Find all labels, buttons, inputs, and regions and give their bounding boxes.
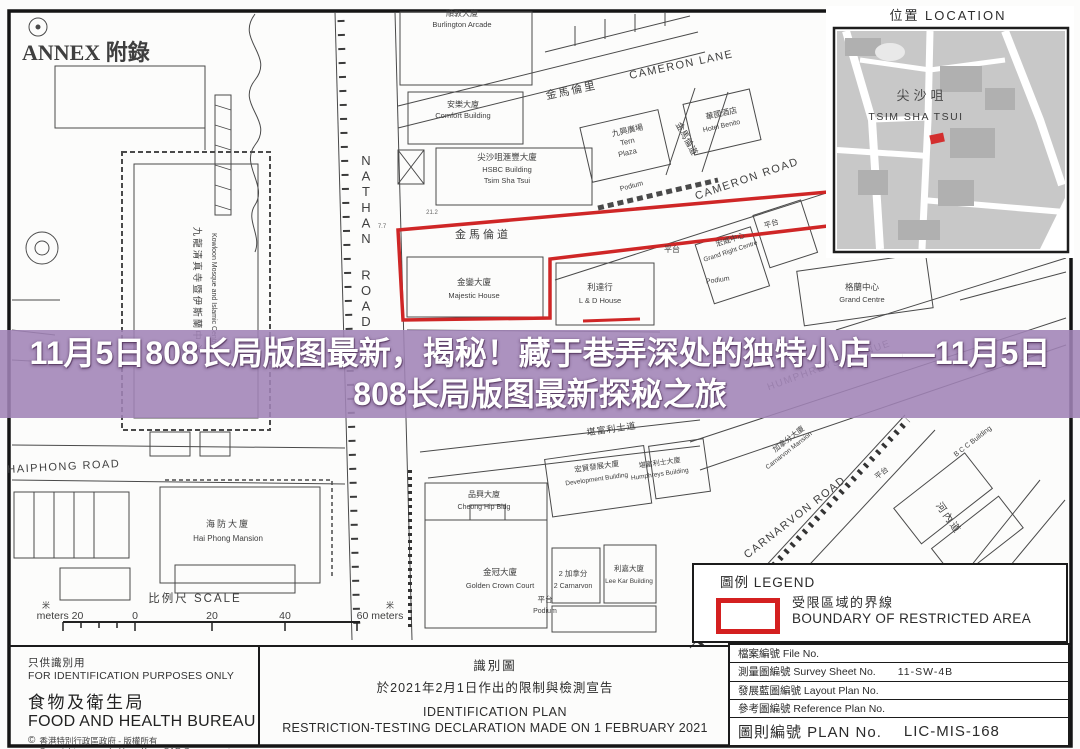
map-label: Golden Crown Court (466, 581, 535, 590)
footer-plan-title-panel: 識別圖 於2021年2月1日作出的限制與檢測宣告 IDENTIFICATION … (262, 647, 728, 747)
map-label: 7.7 (378, 224, 387, 230)
table-row: 圖則編號 PLAN No.LIC-MIS-168 (730, 718, 1068, 745)
map-label: HSBC Building (482, 165, 532, 174)
map-label: Comfort Building (435, 111, 490, 120)
map-label: 尖沙咀 (896, 88, 947, 103)
map-label: ANNEX 附錄 (22, 40, 150, 65)
table-row: 檔案編號 File No. (730, 645, 1068, 663)
map-label: 安樂大廈 (447, 99, 479, 109)
map-label: 平台 (664, 244, 680, 254)
table-row-label: 測量圖編號 Survey Sheet No. (738, 664, 876, 679)
legend-boundary-swatch (716, 598, 780, 634)
table-row-label: 圖則編號 PLAN No. (738, 721, 882, 742)
legend-item-zh: 受限區域的界線 (792, 592, 894, 611)
footer-idonly-en: FOR IDENTIFICATION PURPOSES ONLY (28, 670, 258, 682)
reference-number-table: 檔案編號 File No.測量圖編號 Survey Sheet No.11-SW… (728, 643, 1070, 747)
copyright-text: 香港特別行政區政府 - 版權所有 Copyright reserved - Ho… (39, 736, 230, 749)
map-label: 平台 (538, 594, 553, 604)
map-label: 金馬倫道 (455, 227, 511, 241)
legend-box: 圖例 LEGEND 受限區域的界線 BOUNDARY OF RESTRICTED… (692, 563, 1068, 643)
map-label: 品興大廈 (468, 489, 500, 499)
map-label: Burlington Arcade (432, 20, 491, 29)
identification-plan-page: ANNEX 附錄位置 LOCATION尖沙咀TSIM SHA TSUINATHA… (0, 0, 1080, 749)
map-label: 利達行 (587, 282, 613, 292)
table-row-label: 發展藍圖編號 Layout Plan No. (738, 683, 879, 698)
map-label: 比例尺 SCALE (148, 591, 241, 605)
overlay-banner: 11月5日808长局版图最新，揭秘！藏于巷弄深处的独特小店——11月5日808长… (0, 330, 1080, 418)
copyright-icon: © (28, 736, 35, 749)
map-label: 位置 LOCATION (889, 8, 1006, 23)
copyright-zh: 香港特別行政區政府 - 版權所有 (39, 736, 157, 746)
plan-subtitle-en: RESTRICTION-TESTING DECLARATION MADE ON … (262, 721, 728, 735)
table-row-value: LIC-MIS-168 (904, 723, 1000, 740)
map-label: 格蘭中心 (845, 282, 880, 292)
map-label: 海防大廈 (206, 518, 250, 529)
table-row-value: 11-SW-4B (898, 666, 953, 678)
bureau-name-zh: 食物及衛生局 (28, 688, 258, 713)
bureau-name-en: FOOD AND HEALTH BUREAU (28, 713, 258, 731)
map-label: L & D House (579, 296, 621, 305)
map-label: 20 (206, 610, 218, 622)
overlay-title: 11月5日808长局版图最新，揭秘！藏于巷弄深处的独特小店——11月5日808长… (8, 333, 1072, 415)
legend-heading: 圖例 LEGEND (720, 571, 815, 591)
map-label: 60 meters (357, 610, 404, 622)
map-label: 利嘉大廈 (614, 563, 644, 573)
map-label: 2 Carnarvon (554, 583, 593, 590)
legend-item-en: BOUNDARY OF RESTRICTED AREA (792, 611, 1031, 626)
map-label: Hai Phong Mansion (193, 534, 263, 543)
map-label: NATHAN ROAD (361, 153, 371, 329)
map-label: 0 (132, 610, 138, 622)
table-row: 發展藍圖編號 Layout Plan No. (730, 682, 1068, 700)
plan-title-en: IDENTIFICATION PLAN (262, 705, 728, 719)
map-label: Grand Centre (839, 295, 884, 304)
footer-idonly-zh: 只供識別用 (28, 655, 258, 670)
map-label: 21.2 (426, 210, 438, 216)
map-label: 米 (42, 600, 50, 610)
map-label: Cheong Hip Bldg (458, 504, 511, 511)
location-inset (826, 6, 1074, 258)
map-label: Tsim Sha Tsui (484, 176, 530, 185)
plan-title-zh: 識別圖 (262, 655, 728, 674)
map-label: TSIM SHA TSUI (868, 111, 963, 123)
map-label: 金冠大廈 (483, 567, 518, 577)
map-label: 40 (279, 610, 291, 622)
table-row-label: 檔案編號 File No. (738, 646, 819, 661)
map-label: 金鑾大廈 (457, 277, 492, 287)
map-label: Lee Kar Building (605, 578, 653, 585)
map-label: 尖沙咀滙豐大廈 (477, 152, 537, 162)
map-label: 米 (386, 600, 394, 610)
map-label: 順敦大廈 (446, 8, 478, 18)
map-label: meters 20 (37, 610, 84, 622)
map-label: 2 加拿分 (559, 568, 588, 578)
table-row: 測量圖編號 Survey Sheet No.11-SW-4B (730, 663, 1068, 681)
plan-subtitle-zh: 於2021年2月1日作出的限制與檢測宣告 (262, 677, 728, 696)
footer-identification-panel: 只供識別用 FOR IDENTIFICATION PURPOSES ONLY 食… (10, 647, 260, 747)
table-row: 參考圖編號 Reference Plan No. (730, 700, 1068, 718)
map-label: Podium (533, 608, 557, 615)
copyright: © 香港特別行政區政府 - 版權所有 Copyright reserved - … (28, 736, 258, 749)
map-label: Majestic House (448, 291, 499, 300)
table-row-label: 參考圖編號 Reference Plan No. (738, 701, 885, 716)
